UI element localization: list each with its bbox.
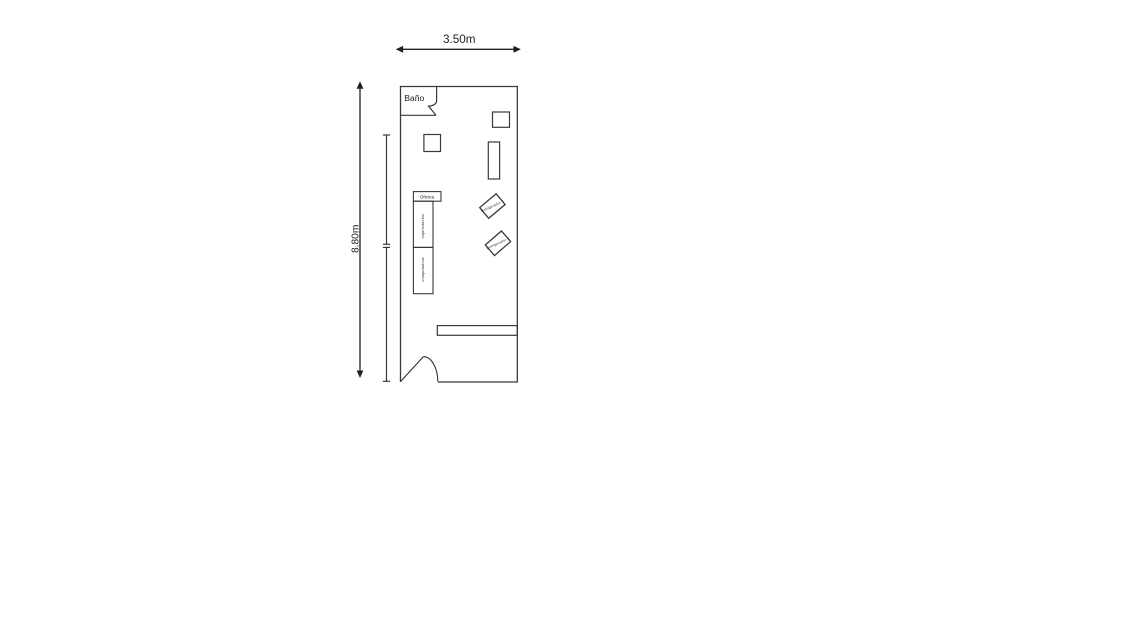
svg-text:Oficina: Oficina	[420, 195, 435, 200]
svg-text:3.50m: 3.50m	[443, 33, 475, 46]
svg-text:caja/estación: caja/estación	[421, 214, 425, 239]
svg-text:Baño: Baño	[404, 93, 424, 103]
svg-text:computadora: computadora	[421, 257, 425, 282]
